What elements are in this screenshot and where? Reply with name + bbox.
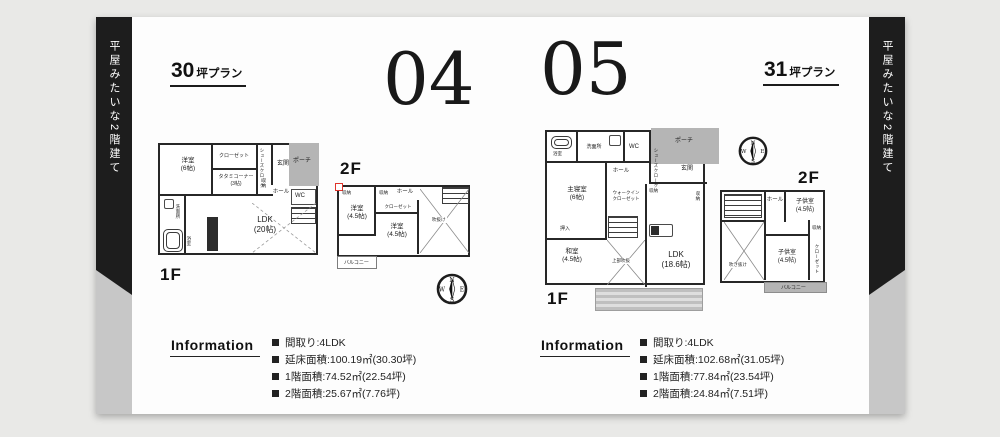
kitchen-counter-icon (207, 217, 218, 251)
plan05-1f-stairs (608, 216, 638, 238)
wall (547, 238, 607, 240)
brochure-page: 平屋みたいな2階建て 平屋みたいな2階建て 30坪プラン 04 05 31坪プラ… (96, 17, 905, 414)
plan04-1f-wc-label: WC (295, 193, 305, 201)
plan04-1f-bath-label: 浴室 (186, 231, 192, 251)
plan04-2f-western-room2: 洋室 (4.5帖) (377, 223, 417, 240)
plan05-1f-oshiire-label: 押入 (553, 226, 577, 233)
washer-icon (609, 135, 621, 146)
bathtub-icon (163, 229, 183, 252)
wall (764, 220, 766, 280)
square-bullet-icon (640, 356, 647, 363)
plan05-2f-floorplan: ホール 子供室 (4.5帖) 吹き抜け 子供室 (4.5帖) 収納 クローゼット… (720, 190, 825, 283)
right-banner-bar: 平屋みたいな2階建て (869, 17, 905, 414)
plan05-info-list: 間取り:4LDK 延床面積:102.68㎡(31.05坪) 1階面積:77.84… (640, 334, 784, 402)
compass-w: W (439, 286, 446, 293)
plan04-2f-balcony: バルコニー (337, 256, 377, 269)
compass-icon: N W E S (737, 135, 769, 167)
plan04-1f-western-room: 洋室 (6帖) (166, 157, 210, 174)
plan04-2f-western-room1: 洋室 (4.5帖) (340, 205, 374, 222)
plan05-2f-void-label: 吹き抜け (728, 262, 748, 268)
plan05-1f-floorplan: ポーチ 浴室 洗面所 WC シューズクローク 玄関 ホール 主寝室 (6帖) (545, 130, 705, 285)
plan04-number: 04 (383, 45, 475, 113)
plan05-info-item: 1階面積:77.84㎡(23.54坪) (640, 368, 784, 385)
plan04-1f-tatami-corner: タタミコーナー (3帖) (214, 174, 258, 187)
plan05-info-item: 2階面積:24.84㎡(7.51坪) (640, 385, 784, 402)
wall (339, 234, 376, 236)
plan04-info-item: 延床面積:100.19㎡(30.30坪) (272, 351, 416, 368)
square-bullet-icon (640, 390, 647, 397)
plan04-info-list: 間取り:4LDK 延床面積:100.19㎡(30.30坪) 1階面積:74.52… (272, 334, 416, 402)
plan05-size-unit: 坪プラン (789, 67, 835, 79)
wall (256, 145, 258, 196)
plan04-1f-floor-label: 1F (160, 265, 182, 285)
plan04-2f-floorplan: ホール 収納 収納 洋室 (4.5帖) クローゼット 洋室 (4.5帖) 吹抜け… (337, 185, 470, 257)
wall (271, 145, 273, 185)
plan04-info-heading: Information (170, 337, 260, 357)
plan05-1f-storage1-label: 収納 (649, 188, 658, 194)
plan04-size-label: 30坪プラン (170, 59, 246, 87)
plan05-2f-stairs (724, 194, 762, 218)
plan05-1f-bath-label: 浴室 (553, 151, 562, 157)
plan05-info-heading: Information (540, 337, 630, 357)
plan05-number: 05 (540, 35, 632, 103)
compass-s: S (450, 297, 454, 304)
plan04-info-item: 2階面積:25.67㎡(7.76坪) (272, 385, 416, 402)
plan05-2f-balcony: バルコニー (764, 282, 827, 293)
left-banner-bar: 平屋みたいな2階建て (96, 17, 132, 414)
square-bullet-icon (272, 356, 279, 363)
plan05-1f-wc-label: WC (629, 144, 639, 152)
wall (645, 184, 647, 287)
plan05-info-item: 間取り:4LDK (640, 334, 784, 351)
plan04-1f-washroom-label: 洗面所 (175, 199, 181, 223)
plan05-1f-walk-in-closet: ウォークイン クローゼット (608, 190, 644, 202)
plan05-2f-kids-room1: 子供室 (4.5帖) (786, 199, 824, 215)
plan05-1f-hall-label: ホール (609, 168, 633, 175)
plan04-info-item: 1階面積:74.52㎡(22.54坪) (272, 368, 416, 385)
plan04-1f-storage-label: 収納 (261, 173, 267, 193)
plan05-1f-shoe-closet-label: シューズクローク (653, 148, 659, 180)
plan04-1f-floorplan: ポーチ 洋室 (6帖) クローゼット シューズクローク 玄関 タタミコーナー (… (158, 143, 318, 255)
plan05-1f-master-bedroom: 主寝室 (6帖) (551, 186, 603, 203)
plan04-size-number: 30 (171, 59, 194, 82)
stove-icon (651, 226, 659, 235)
square-bullet-icon (272, 373, 279, 380)
wall (211, 168, 258, 170)
plan04-info-item: 間取り:4LDK (272, 334, 416, 351)
wall (374, 212, 419, 214)
washer-icon (164, 199, 174, 209)
plan05-1f-floor-label: 1F (547, 289, 569, 309)
wall (605, 163, 607, 240)
plan05-1f-porch-area: ポーチ (651, 128, 719, 164)
wall (808, 220, 810, 280)
plan04-2f-hall-label: ホール (391, 189, 419, 196)
brochure-page-background: 平屋みたいな2階建て 平屋みたいな2階建て 30坪プラン 04 05 31坪プラ… (0, 0, 1000, 437)
wall (417, 200, 419, 254)
square-bullet-icon (272, 339, 279, 346)
plan05-info-item: 延床面積:102.68㎡(31.05坪) (640, 351, 784, 368)
plan04-1f-entrance-label: 玄関 (274, 161, 292, 169)
wall (160, 194, 213, 196)
right-banner-text: 平屋みたいな2階建て (879, 40, 895, 175)
wall (623, 132, 625, 162)
plan04-1f-porch-label: ポーチ (293, 158, 311, 166)
plan04-1f-ldk-label: LDK (20帖) (240, 215, 290, 236)
plan04-2f-storage1-label: 収納 (342, 190, 351, 196)
square-bullet-icon (272, 390, 279, 397)
plan04-2f-balcony-label: バルコニー (344, 260, 369, 267)
plan04-2f-closet-label: クローゼット (379, 204, 417, 210)
square-bullet-icon (640, 373, 647, 380)
plan05-1f-porch-label: ポーチ (675, 138, 693, 146)
compass-e: E (760, 149, 764, 155)
plan04-1f-porch-area: ポーチ (289, 143, 319, 186)
plan05-2f-balcony-label: バルコニー (781, 285, 806, 292)
plan05-1f-void-label: 上部吹抜 (611, 258, 631, 264)
plan05-1f-deck (595, 288, 703, 311)
plan05-1f-entrance-label: 玄関 (673, 166, 701, 174)
plan04-size-unit: 坪プラン (196, 68, 242, 80)
wall (547, 161, 651, 163)
plan05-1f-washroom-label: 洗面所 (581, 144, 607, 151)
compass-icon: N W E S (435, 272, 469, 306)
compass-s: S (751, 159, 755, 165)
compass-n: N (751, 140, 756, 146)
plan05-1f-storage2-label: 収納 (695, 188, 701, 204)
plan05-1f-ldk-label: LDK (18.6帖) (649, 250, 703, 271)
wall (211, 194, 273, 196)
plan05-2f-hall-label: ホール (764, 197, 786, 204)
wall (764, 234, 810, 236)
plan05-2f-kids-room2: 子供室 (4.5帖) (768, 250, 806, 266)
compass-w: W (741, 149, 747, 155)
square-bullet-icon (640, 339, 647, 346)
plan05-size-label: 31坪プラン (763, 58, 839, 86)
bathtub-icon (551, 136, 572, 149)
plan04-1f-closet-label: クローゼット (213, 153, 255, 160)
plan05-2f-void-cross-icon (724, 222, 764, 280)
left-banner-text: 平屋みたいな2階建て (106, 40, 122, 175)
plan05-1f-japanese-room: 和室 (4.5帖) (549, 248, 595, 265)
compass-n: N (449, 277, 454, 284)
plan04-1f-hall-label: ホール (270, 189, 292, 196)
plan04-2f-void-label: 吹抜け (431, 217, 447, 223)
plan05-2f-storage-label: 収納 (812, 225, 821, 231)
wall (649, 132, 651, 184)
plan05-2f-floor-label: 2F (798, 168, 820, 188)
wall (576, 132, 578, 162)
plan05-size-number: 31 (764, 58, 787, 81)
plan04-2f-floor-label: 2F (340, 159, 362, 179)
wall (374, 187, 376, 235)
compass-e: E (460, 286, 464, 293)
plan05-2f-closet-label: クローゼット (814, 240, 820, 278)
plan04-2f-storage2-label: 収納 (379, 190, 388, 196)
